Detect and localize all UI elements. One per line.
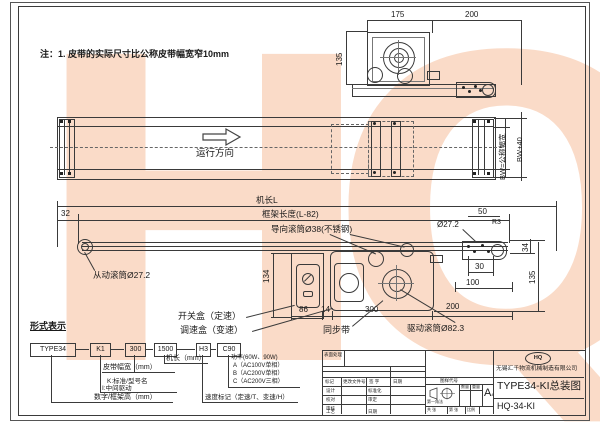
dim-end-roller: Ø27.2 bbox=[437, 221, 459, 230]
dimension-line bbox=[455, 288, 512, 289]
title-block-line bbox=[344, 350, 345, 366]
direction-label: 运行方向 bbox=[196, 149, 234, 160]
drawing-title: TYPE34-KI总装图 bbox=[497, 381, 581, 393]
power-option-c: C（AC200V三相） bbox=[233, 379, 284, 386]
machine-length-label: 机长（mm） bbox=[166, 355, 206, 363]
corner-mark bbox=[60, 120, 63, 123]
title-block-line bbox=[322, 404, 425, 405]
switch-box-panel bbox=[296, 264, 320, 308]
speed-box-label: 调速盒（变速） bbox=[180, 325, 243, 335]
connector-line bbox=[76, 349, 89, 350]
power-label: 功率(60W、90W) bbox=[231, 355, 278, 362]
type-code-box: TYPE34 bbox=[30, 343, 76, 357]
i-option-label: I:中间驱动 bbox=[102, 385, 132, 392]
extension-line bbox=[78, 214, 79, 244]
tree-line bbox=[228, 355, 229, 387]
dim-machine-length: 机长L bbox=[256, 196, 278, 206]
extension-line bbox=[521, 20, 522, 85]
driven-roller-shaft bbox=[81, 243, 89, 251]
tree-line bbox=[51, 355, 52, 402]
speed-mark-label: 速度标记（定速/T、变速/H） bbox=[205, 394, 289, 401]
role-check: 校对 bbox=[326, 397, 335, 402]
connector-line bbox=[145, 349, 153, 350]
bolt-dot bbox=[373, 122, 376, 125]
tail-pulley-cap bbox=[59, 119, 75, 178]
extension-line bbox=[493, 256, 494, 276]
dimension-line bbox=[346, 31, 347, 84]
belt-line bbox=[82, 250, 508, 251]
bolt-dot bbox=[467, 245, 470, 248]
belt-line bbox=[82, 242, 508, 243]
dim-200: 200 bbox=[465, 11, 478, 20]
tree-underline bbox=[51, 402, 173, 403]
dim-belt-width: BW=公称幅宽 bbox=[499, 134, 507, 180]
sheet-number-label: 第 张 bbox=[449, 408, 458, 412]
dimension-line bbox=[57, 220, 78, 221]
extension-line bbox=[455, 282, 456, 292]
hidden-drive-outline bbox=[331, 124, 369, 174]
title-block-line bbox=[459, 384, 460, 406]
extension-line bbox=[432, 20, 433, 33]
rail-line bbox=[58, 169, 493, 170]
bolt-dot bbox=[474, 85, 477, 88]
title-block-line bbox=[390, 366, 391, 377]
dimension-line bbox=[468, 272, 493, 273]
dim-200: 200 bbox=[446, 303, 459, 312]
change-header-mark: 标记 bbox=[325, 379, 334, 384]
dim-135: 135 bbox=[529, 271, 538, 284]
cap-line bbox=[484, 120, 485, 175]
sheet-total-label: 共 张 bbox=[427, 408, 436, 412]
connector-line bbox=[176, 349, 195, 350]
centerline bbox=[50, 147, 502, 148]
type-code-box: 300 bbox=[125, 343, 146, 357]
corner-mark bbox=[68, 172, 71, 175]
driven-roller-label: 从动滚筒Ø27.2 bbox=[93, 271, 150, 281]
qty-label: 数量 bbox=[461, 385, 469, 389]
bolt-dot bbox=[393, 122, 396, 125]
power-option-b: B（AC200V单相） bbox=[233, 371, 283, 378]
title-block-line bbox=[322, 377, 493, 378]
cap-line bbox=[478, 120, 479, 175]
tree-underline bbox=[228, 387, 300, 388]
dimension-line bbox=[291, 316, 512, 317]
corner-mark bbox=[473, 172, 476, 175]
dim-frame-length: 框架长度(L-82) bbox=[262, 210, 319, 220]
title-block-line bbox=[366, 377, 367, 414]
sheet-size-label: A4 bbox=[484, 387, 494, 399]
dim-32: 32 bbox=[61, 210, 70, 219]
dimension-line bbox=[538, 242, 539, 312]
dim-135: 135 bbox=[336, 53, 345, 66]
bolt-dot bbox=[468, 90, 471, 93]
guide-roller-circle bbox=[368, 251, 384, 267]
corner-mark bbox=[68, 120, 71, 123]
bolt-dot bbox=[487, 250, 490, 253]
dim-134: 134 bbox=[263, 270, 272, 283]
extension-line bbox=[432, 311, 433, 320]
extension-line bbox=[512, 282, 513, 292]
cap-line bbox=[69, 120, 70, 175]
type-code-heading: 形式表示 bbox=[30, 321, 66, 331]
extension-line bbox=[512, 311, 513, 320]
bolt-dot bbox=[462, 86, 465, 89]
title-block-line bbox=[322, 371, 425, 372]
connector-line bbox=[210, 349, 216, 350]
end-roller-circle bbox=[482, 84, 494, 96]
corner-mark bbox=[473, 120, 476, 123]
extension-line bbox=[509, 214, 510, 243]
title-block-line bbox=[470, 384, 471, 406]
tree-underline bbox=[164, 363, 208, 364]
timing-belt-label: 同步带 bbox=[323, 325, 350, 335]
dim-86: 86 bbox=[299, 306, 308, 315]
tree-line bbox=[100, 355, 101, 392]
extension-line bbox=[332, 311, 333, 320]
bolt-dot bbox=[393, 171, 396, 174]
tree-underline bbox=[102, 372, 175, 373]
shaft-circle bbox=[394, 53, 404, 63]
extension-line bbox=[494, 127, 510, 128]
dim-100: 100 bbox=[466, 279, 479, 288]
title-block-line bbox=[390, 377, 391, 414]
tree-underline bbox=[202, 402, 298, 403]
extension-line bbox=[346, 31, 368, 32]
title-block-line bbox=[482, 384, 483, 406]
title-block-line bbox=[322, 386, 425, 387]
speed-dial bbox=[302, 273, 314, 285]
drawing-note: 注：1. 皮带的实际尺寸比公称皮带幅宽窄10mm bbox=[40, 49, 229, 59]
change-header-sign: 签 字 bbox=[369, 379, 379, 384]
surface-treatment-label: 表面处理 bbox=[324, 352, 342, 357]
dim-r3: R3 bbox=[492, 219, 501, 227]
company-name: 无锡汇千物流机械制造有限公司 bbox=[496, 366, 577, 372]
idler-circle bbox=[367, 67, 383, 83]
bolt-dot bbox=[373, 171, 376, 174]
role-design: 设计 bbox=[326, 388, 335, 393]
belt-width-label: 皮带幅宽（mm） bbox=[103, 364, 157, 372]
title-block-line bbox=[322, 366, 425, 367]
dim-34: 34 bbox=[522, 243, 531, 252]
drive-roller-label: 驱动滚筒Ø82.3 bbox=[407, 324, 464, 334]
extension-line bbox=[468, 256, 469, 276]
dim-175: 175 bbox=[391, 11, 404, 20]
corner-mark bbox=[487, 120, 490, 123]
centerline bbox=[396, 265, 397, 301]
title-block-line bbox=[465, 406, 466, 414]
power-option-a: A（AC100V单相） bbox=[233, 363, 283, 370]
role-approve: 审定 bbox=[368, 397, 377, 402]
scale-label: 比例 bbox=[467, 408, 475, 412]
title-block-line bbox=[459, 390, 482, 391]
projection-label: 第一角法 bbox=[427, 400, 443, 404]
guide-roller-label: 导向滚筒Ø38(不锈钢) bbox=[271, 225, 352, 235]
change-header-date: 日期 bbox=[393, 379, 402, 384]
extension-line bbox=[510, 253, 535, 254]
title-block-line bbox=[341, 377, 342, 414]
title-block-line bbox=[493, 398, 584, 399]
title-block-line bbox=[425, 350, 426, 414]
title-block-line bbox=[447, 406, 448, 414]
change-header-docno: 更改文件号 bbox=[343, 379, 366, 384]
extension-line bbox=[510, 240, 545, 241]
bolt-dot bbox=[473, 250, 476, 253]
motor-shaft-circle bbox=[339, 273, 359, 293]
roller-bar bbox=[371, 121, 381, 177]
role-process: 工艺 bbox=[326, 409, 335, 414]
belt-line bbox=[82, 246, 508, 247]
dimension-line bbox=[273, 253, 274, 317]
role-standard: 标准化 bbox=[368, 388, 382, 393]
drawing-number: HQ-34-KI bbox=[497, 401, 535, 411]
head-pulley-cap bbox=[472, 119, 494, 178]
weight-label: 重量 bbox=[472, 385, 480, 389]
title-block-line bbox=[493, 377, 584, 378]
dimension-line bbox=[468, 216, 500, 217]
dimension-line bbox=[432, 20, 521, 21]
idler-circle bbox=[397, 68, 413, 84]
roller-bar bbox=[391, 121, 401, 177]
frame-height-label: 数字/框架高（mm） bbox=[94, 394, 157, 402]
extension-line bbox=[494, 118, 527, 119]
direction-arrow-icon bbox=[202, 127, 242, 147]
title-block-line bbox=[493, 350, 494, 414]
extension-line bbox=[271, 253, 291, 254]
role-date: 日期 bbox=[368, 409, 377, 414]
bolt-dot bbox=[481, 244, 484, 247]
corner-mark bbox=[60, 172, 63, 175]
switch-slot bbox=[303, 291, 313, 297]
cap-line bbox=[64, 120, 65, 175]
tree-line bbox=[164, 355, 165, 363]
extension-line bbox=[271, 317, 291, 318]
drawing-sheet: HQ 注：1. 皮带的实际尺寸比公称皮带幅宽窄10mm 175 200 135 bbox=[0, 0, 600, 424]
sheet-size-sub: 4 bbox=[491, 392, 493, 397]
dimension-line bbox=[367, 20, 432, 21]
shaft-stub bbox=[427, 71, 440, 80]
rail-line bbox=[58, 126, 493, 127]
corner-mark bbox=[487, 172, 490, 175]
extension-line bbox=[57, 201, 58, 247]
company-logo: HQ bbox=[525, 352, 551, 365]
shaft-stub bbox=[430, 255, 443, 263]
title-block-line bbox=[479, 406, 480, 414]
drawing-code-header: 图样代号 bbox=[440, 378, 458, 383]
extension-line bbox=[556, 201, 557, 251]
switch-box-label: 开关盒（定速） bbox=[178, 311, 241, 321]
guide-roller-circle bbox=[400, 243, 414, 257]
connector-line bbox=[110, 349, 124, 350]
title-block-line bbox=[322, 395, 425, 396]
dim-30: 30 bbox=[475, 263, 484, 272]
dim-overall-width: BW+40 bbox=[516, 137, 524, 162]
